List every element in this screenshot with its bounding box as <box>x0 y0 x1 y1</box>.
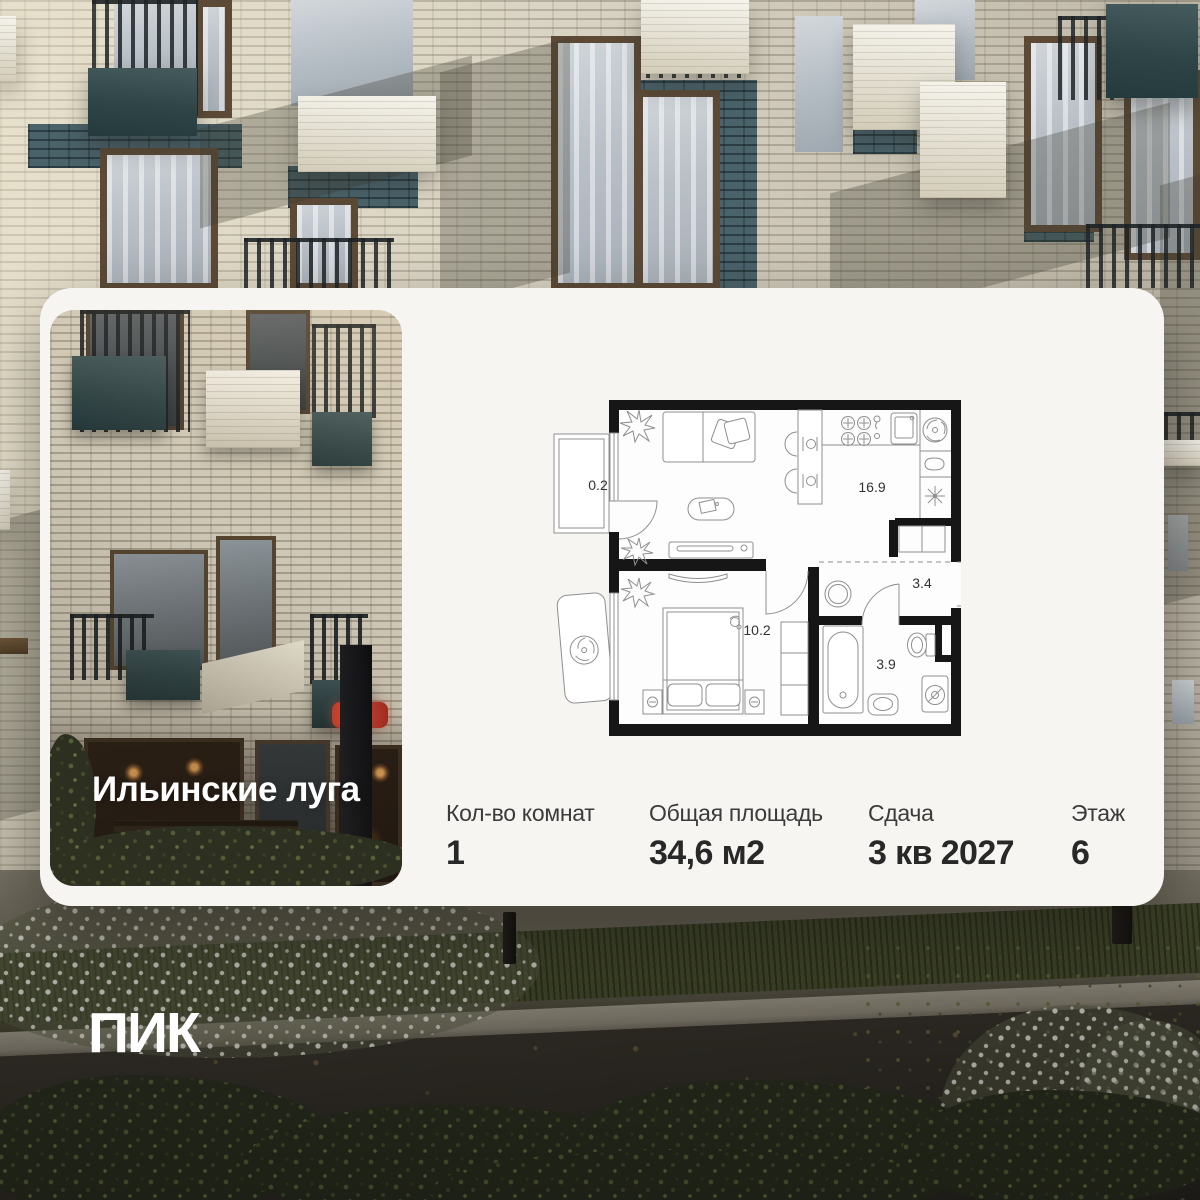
spec-floor-value: 6 <box>1071 834 1125 873</box>
spec-rooms: Кол-во комнат 1 <box>446 800 594 873</box>
spec-area-value: 34,6 м2 <box>649 834 823 873</box>
promo-screenshot: Ильинские луга <box>0 0 1200 1200</box>
window-lintel <box>0 638 28 654</box>
facade-window <box>196 0 232 118</box>
cast-shadow <box>0 510 40 821</box>
balcony-box-teal <box>1106 4 1198 98</box>
floor-plan: 0.2 16.9 3.4 10.2 3.9 <box>551 398 961 738</box>
balcony-box-white <box>0 16 16 82</box>
spec-area: Общая площадь 34,6 м2 <box>649 800 823 873</box>
spec-delivery-value: 3 кв 2027 <box>868 834 1014 873</box>
balcony-box-white <box>298 96 436 172</box>
spec-delivery: Сдача 3 кв 2027 <box>868 800 1014 873</box>
room-area-balcony: 0.2 <box>588 477 608 493</box>
spec-area-label: Общая площадь <box>649 800 823 827</box>
spec-floor-label: Этаж <box>1071 800 1125 827</box>
room-area-bathroom: 3.9 <box>876 656 896 672</box>
teal-brick-panel <box>853 126 917 154</box>
bollard <box>503 912 516 964</box>
fridge-snowflake-icon <box>925 486 945 506</box>
project-name: Ильинские луга <box>92 770 360 810</box>
balcony-box-white <box>920 82 1006 198</box>
spec-rooms-value: 1 <box>446 834 594 873</box>
balcony-railing <box>1086 224 1200 288</box>
spec-floor: Этаж 6 <box>1071 800 1125 873</box>
room-area-kitchen-living: 16.9 <box>858 479 885 495</box>
balcony-box-white <box>1164 440 1200 466</box>
balcony-box-white <box>641 0 749 74</box>
facade-window <box>636 90 720 290</box>
cast-shadow <box>440 38 570 308</box>
plan-ac-unit <box>556 592 613 704</box>
balcony-box-white <box>0 470 10 530</box>
project-photo: Ильинские луга <box>50 310 402 886</box>
balcony-railing <box>244 238 394 288</box>
facade-window <box>795 16 843 152</box>
room-area-hallway: 3.4 <box>912 575 932 591</box>
spec-delivery-label: Сдача <box>868 800 1014 827</box>
room-area-bedroom: 10.2 <box>743 622 770 638</box>
apartment-listing-card[interactable]: Ильинские луга <box>40 288 1164 906</box>
spec-rooms-label: Кол-во комнат <box>446 800 594 827</box>
balcony-box-teal <box>88 68 197 136</box>
facade-window <box>1172 680 1194 724</box>
pik-logo: ПИК <box>88 1000 199 1066</box>
